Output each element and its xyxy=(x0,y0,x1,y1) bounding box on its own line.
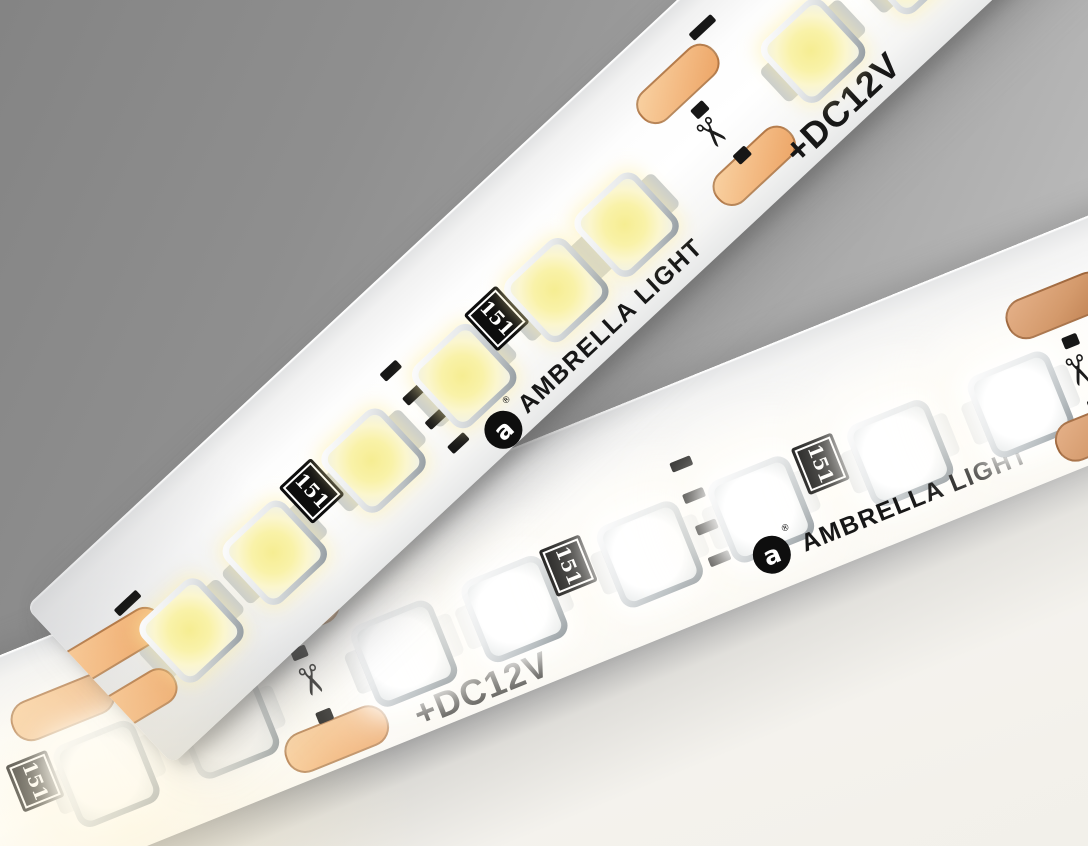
minus-mark xyxy=(688,14,716,41)
cut-mark-dash xyxy=(379,360,402,382)
led-chip xyxy=(859,0,958,12)
scissors-icon: ✂ xyxy=(685,108,737,160)
solder-tab xyxy=(854,0,899,15)
photo-canvas: 151 ✂ +DC12V 151 151 xyxy=(0,0,1088,846)
resistor-code: 151 xyxy=(290,469,333,513)
brand-logo-letter: a xyxy=(487,413,519,446)
warm-led-glow xyxy=(0,620,430,846)
warm-led xyxy=(850,0,966,20)
cut-mark-dash xyxy=(447,432,470,454)
